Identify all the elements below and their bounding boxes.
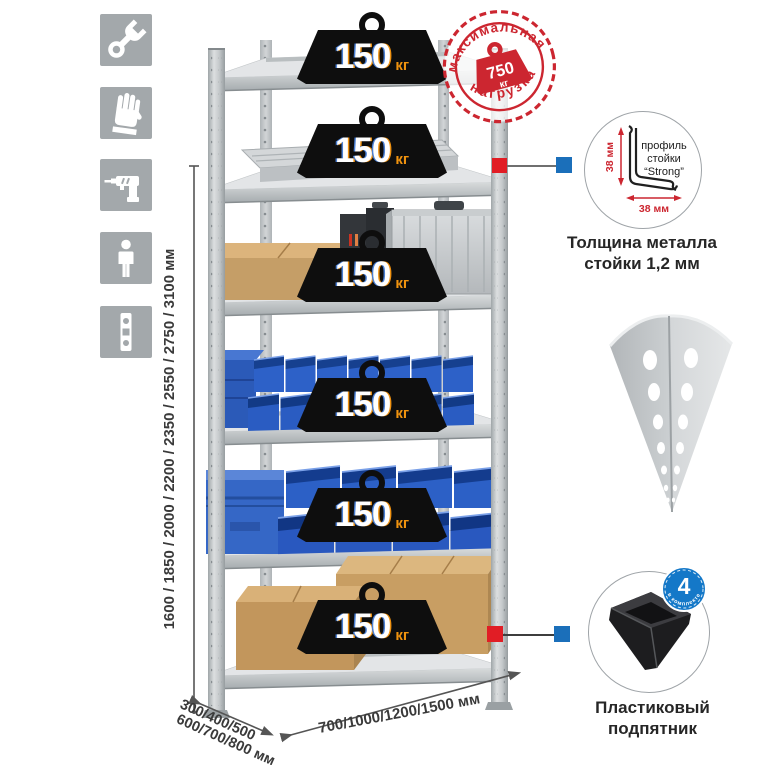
- profile-vertical-dim: 38 мм: [604, 142, 616, 172]
- feature-tile-gloves: [100, 87, 152, 139]
- product-infographic: 150 кг 150 кг 150 кг 150 кг 150 кг: [0, 0, 765, 765]
- profile-caption-line1: Толщина металла: [557, 232, 727, 253]
- shelf-load-weight-4: 150 кг: [297, 360, 447, 432]
- weight-unit: кг: [395, 515, 409, 532]
- height-dimension: 1600 / 1850 / 2000 / 2200 / 2350 / 2550 …: [158, 158, 200, 720]
- weight-unit: кг: [395, 57, 409, 74]
- weight-unit: кг: [395, 405, 409, 422]
- person-icon: [102, 234, 150, 282]
- weight-body: 150 кг: [297, 30, 447, 84]
- profile-cross-section: 38 мм 38 мм профиль стойки “Strong”: [585, 112, 701, 228]
- width-dimension-label: 700/1000/1200/1500 мм: [317, 690, 481, 737]
- profile-caption: Толщина металла стойки 1,2 мм: [557, 232, 727, 274]
- max-load-stamp: максимальная нагрузка 750 кг: [441, 8, 559, 126]
- foot-caption-line2: подпятник: [570, 718, 735, 739]
- weight-value: 150: [335, 495, 390, 535]
- foot-marker-blue: [554, 626, 570, 642]
- kit-quantity-badge: 4 в комплекте: [660, 565, 708, 613]
- gloves-icon: [102, 89, 150, 137]
- profile-marker-blue: [556, 157, 572, 173]
- feature-tile-tools: [100, 14, 152, 66]
- feature-tile-person: [100, 232, 152, 284]
- shelf-load-weight-1: 150 кг: [297, 12, 447, 84]
- weight-value: 150: [335, 607, 390, 647]
- shelf-load-weight-5: 150 кг: [297, 470, 447, 542]
- profile-caption-line2: стойки 1,2 мм: [557, 253, 727, 274]
- weight-body: 150 кг: [297, 600, 447, 654]
- weight-unit: кг: [395, 275, 409, 292]
- profile-marker-red: [492, 158, 507, 173]
- foot-marker-red: [487, 626, 503, 642]
- profile-detail-circle: 38 мм 38 мм профиль стойки “Strong”: [584, 111, 702, 229]
- profile-label-line3: “Strong”: [644, 166, 684, 178]
- weight-value: 150: [335, 385, 390, 425]
- drill-icon: [102, 161, 150, 209]
- height-dimension-label: 1600 / 1850 / 2000 / 2200 / 2350 / 2550 …: [161, 249, 178, 630]
- weight-body: 150 кг: [297, 124, 447, 178]
- badge-value: 4: [678, 573, 691, 599]
- foot-caption-line1: Пластиковый: [570, 697, 735, 718]
- foot-connector-line: [503, 634, 557, 636]
- weight-value: 150: [335, 37, 390, 77]
- shelf-load-weight-3: 150 кг: [297, 230, 447, 302]
- level-icon: [102, 308, 150, 356]
- weight-body: 150 кг: [297, 378, 447, 432]
- profile-label-line2: стойки: [647, 153, 681, 165]
- weight-unit: кг: [395, 627, 409, 644]
- weight-body: 150 кг: [297, 488, 447, 542]
- bottom-dimensions: 300/400/500 600/700/800 мм 700/1000/1200…: [150, 660, 540, 765]
- foot-caption: Пластиковый подпятник: [570, 697, 735, 739]
- profile-label-line1: профиль: [641, 140, 687, 152]
- shelf-load-weight-6: 150 кг: [297, 582, 447, 654]
- weight-value: 150: [335, 131, 390, 171]
- shelf-load-weight-2: 150 кг: [297, 106, 447, 178]
- weight-body: 150 кг: [297, 248, 447, 302]
- weight-unit: кг: [395, 151, 409, 168]
- feature-tile-drill: [100, 159, 152, 211]
- wrench-icon: [102, 16, 150, 64]
- feature-tile-level: [100, 306, 152, 358]
- weight-value: 150: [335, 255, 390, 295]
- angle-post-image: [598, 300, 746, 525]
- profile-horizontal-dim: 38 мм: [639, 203, 669, 215]
- profile-connector-line: [505, 165, 559, 167]
